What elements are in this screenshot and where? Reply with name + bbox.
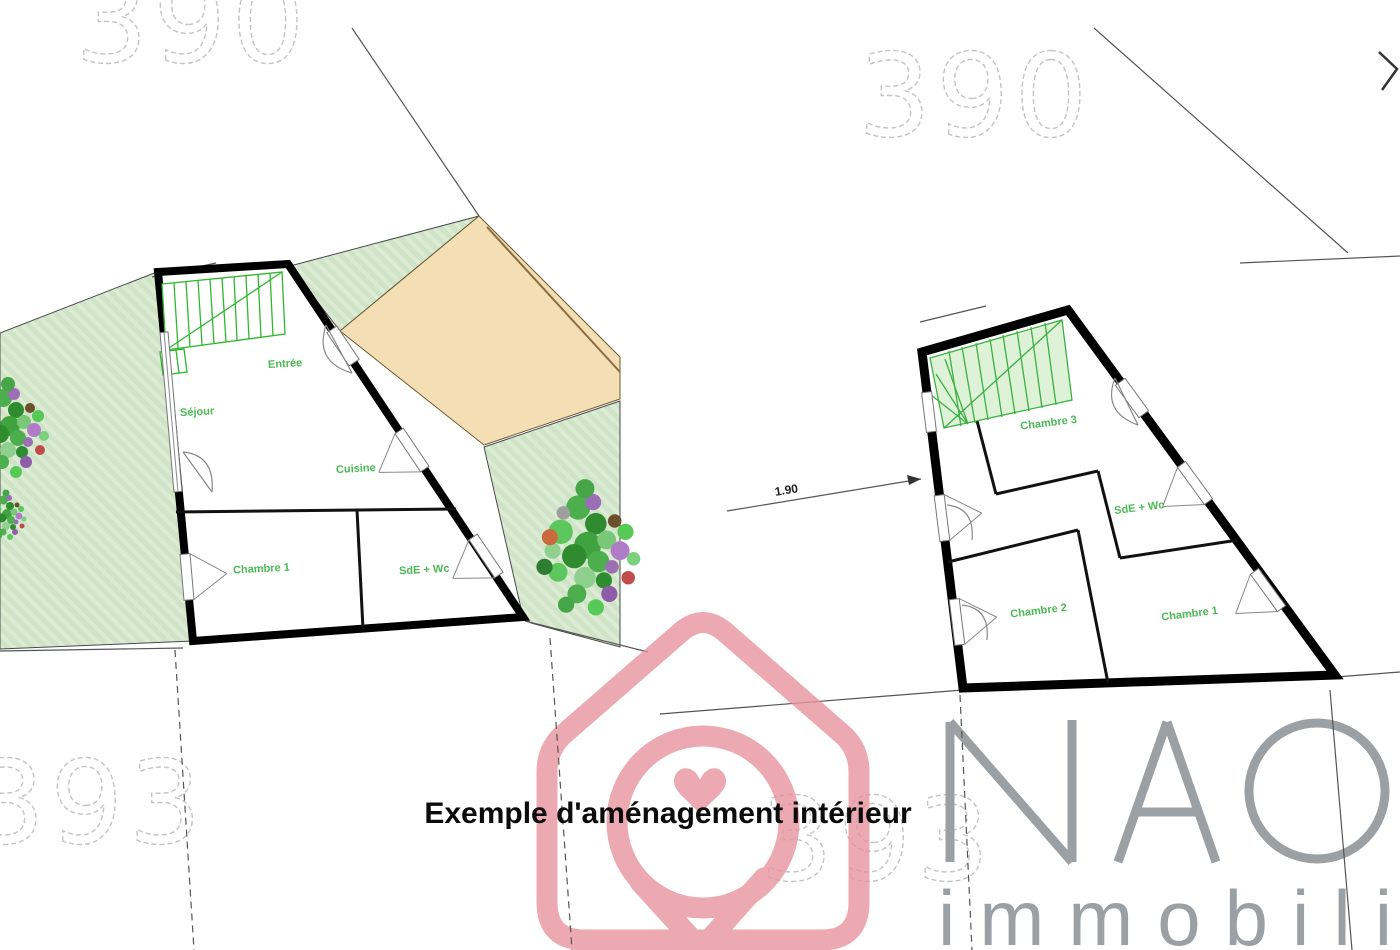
north-arrow (1379, 52, 1397, 90)
ground-floor-plan: Entrée Séjour Cuisine Chambre 1 SdE + Wc (0, 28, 648, 652)
dimension-line: 1.90 (727, 475, 921, 511)
parcel-number-top-left: 390 (75, 0, 310, 90)
parcel-number-bottom-left: 393 (0, 737, 207, 871)
site-plan-image: Entrée Séjour Cuisine Chambre 1 SdE + Wc… (0, 0, 1400, 950)
floor-plan-canvas: Entrée Séjour Cuisine Chambre 1 SdE + Wc… (0, 0, 1400, 950)
parcel-number-top-right: 390 (858, 30, 1093, 164)
brand-tagline: immobili (938, 874, 1400, 950)
brand-name: NAO immobili (938, 720, 1400, 950)
room-label-cuisine: Cuisine (336, 462, 376, 476)
room-label-sejour: Séjour (180, 405, 216, 419)
page-title: Exemple d'aménagement intérieur (424, 797, 912, 830)
dimension-label: 1.90 (774, 481, 800, 499)
room-label-entree: Entrée (268, 357, 303, 371)
